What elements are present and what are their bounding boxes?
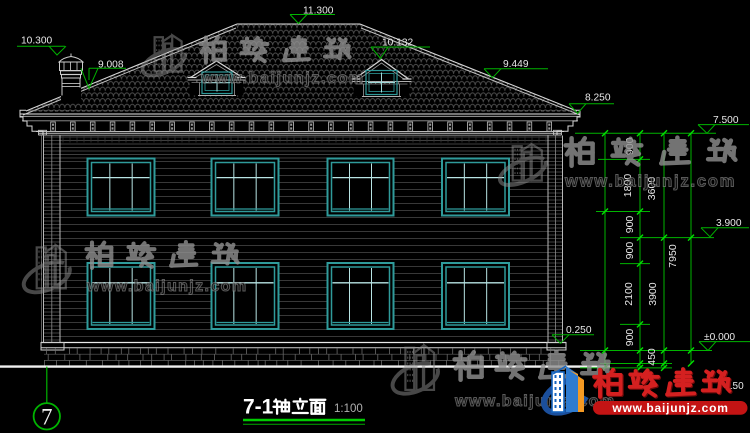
svg-text:7: 7	[41, 405, 53, 430]
svg-text:1:100: 1:100	[334, 403, 363, 415]
svg-text:900: 900	[624, 216, 636, 234]
svg-text:900: 900	[624, 329, 636, 347]
svg-text:2100: 2100	[623, 282, 635, 306]
svg-text:8.250: 8.250	[585, 93, 611, 104]
svg-text:3900: 3900	[647, 282, 659, 306]
svg-text:www.baijunjz.com: www.baijunjz.com	[611, 401, 728, 415]
svg-text:www.baijunjz.com: www.baijunjz.com	[86, 278, 248, 295]
svg-text:www.baijunjz.com: www.baijunjz.com	[564, 173, 736, 191]
svg-text:www.baijunjz.com: www.baijunjz.com	[200, 70, 365, 87]
svg-text:www.baijunjz.com: www.baijunjz.com	[454, 393, 616, 410]
svg-text:7-1: 7-1	[243, 396, 274, 419]
svg-text:9.008: 9.008	[98, 60, 124, 71]
svg-text:900: 900	[624, 242, 636, 260]
svg-text:450: 450	[646, 348, 658, 366]
svg-text:10.300: 10.300	[21, 36, 52, 47]
svg-text:7950: 7950	[667, 244, 679, 268]
